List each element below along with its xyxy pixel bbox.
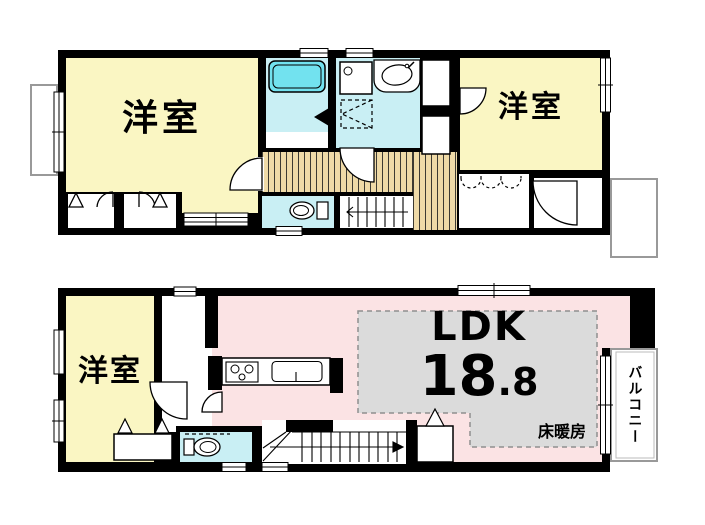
1f-kitchen bbox=[222, 358, 330, 385]
door-arc bbox=[150, 382, 187, 419]
1f-closets bbox=[114, 409, 453, 462]
1f-closet-box bbox=[417, 426, 453, 462]
folding-door-icon bbox=[153, 193, 167, 207]
1f-closet-box bbox=[114, 434, 172, 460]
door-arc bbox=[230, 158, 262, 190]
1f-doors bbox=[150, 382, 222, 419]
2f-right-closets bbox=[422, 60, 450, 154]
2f-washroom-fixtures bbox=[340, 60, 420, 128]
2f-stairs bbox=[347, 197, 408, 227]
1f-stairs bbox=[263, 429, 406, 462]
ldk-size: 18.8 bbox=[398, 348, 560, 407]
floorplan-linework bbox=[0, 0, 705, 525]
curtain-icon bbox=[461, 178, 521, 188]
1f-toilet-fixture bbox=[184, 434, 230, 456]
balcony-inner-line bbox=[616, 352, 654, 458]
toilet-tank-icon bbox=[317, 202, 328, 219]
ldk-size-frac: .8 bbox=[498, 363, 539, 403]
washing-machine-icon bbox=[340, 62, 372, 94]
folding-door-icon bbox=[118, 419, 132, 433]
bathtub-icon bbox=[269, 61, 325, 92]
2f-curtain-closet-symbol bbox=[461, 170, 521, 188]
2f-toilet-fixture bbox=[290, 202, 328, 219]
ldk-label: LDK bbox=[398, 306, 560, 348]
door-arc bbox=[533, 181, 577, 225]
toilet-tank-icon bbox=[184, 439, 194, 455]
door-arc bbox=[202, 392, 222, 412]
door-arc bbox=[139, 192, 155, 207]
ldk-size-int: 18 bbox=[420, 348, 498, 407]
1f-west-room-label: 洋室 bbox=[66, 356, 154, 388]
bath-door-icon bbox=[314, 105, 334, 129]
folding-door-icon bbox=[69, 193, 83, 207]
folding-door-icon bbox=[155, 419, 169, 433]
2f-bathroom-fixtures bbox=[269, 61, 334, 129]
2f-closet-box bbox=[422, 116, 450, 154]
door-arc bbox=[97, 192, 113, 207]
2f-closet-box bbox=[422, 60, 450, 106]
2f-west-room-left-label: 洋室 bbox=[66, 100, 258, 138]
sink-icon bbox=[272, 362, 322, 382]
2f-closet-fold-doors bbox=[69, 192, 167, 207]
floor-heating-label: 床暖房 bbox=[517, 424, 607, 441]
floorplan-canvas: バルコニー bbox=[0, 0, 705, 525]
door-arc bbox=[340, 148, 374, 182]
2f-windows bbox=[52, 49, 613, 236]
2f-west-room-right-label: 洋室 bbox=[460, 92, 602, 124]
folding-door-icon bbox=[426, 409, 444, 426]
washer-pan-icon bbox=[341, 100, 372, 128]
